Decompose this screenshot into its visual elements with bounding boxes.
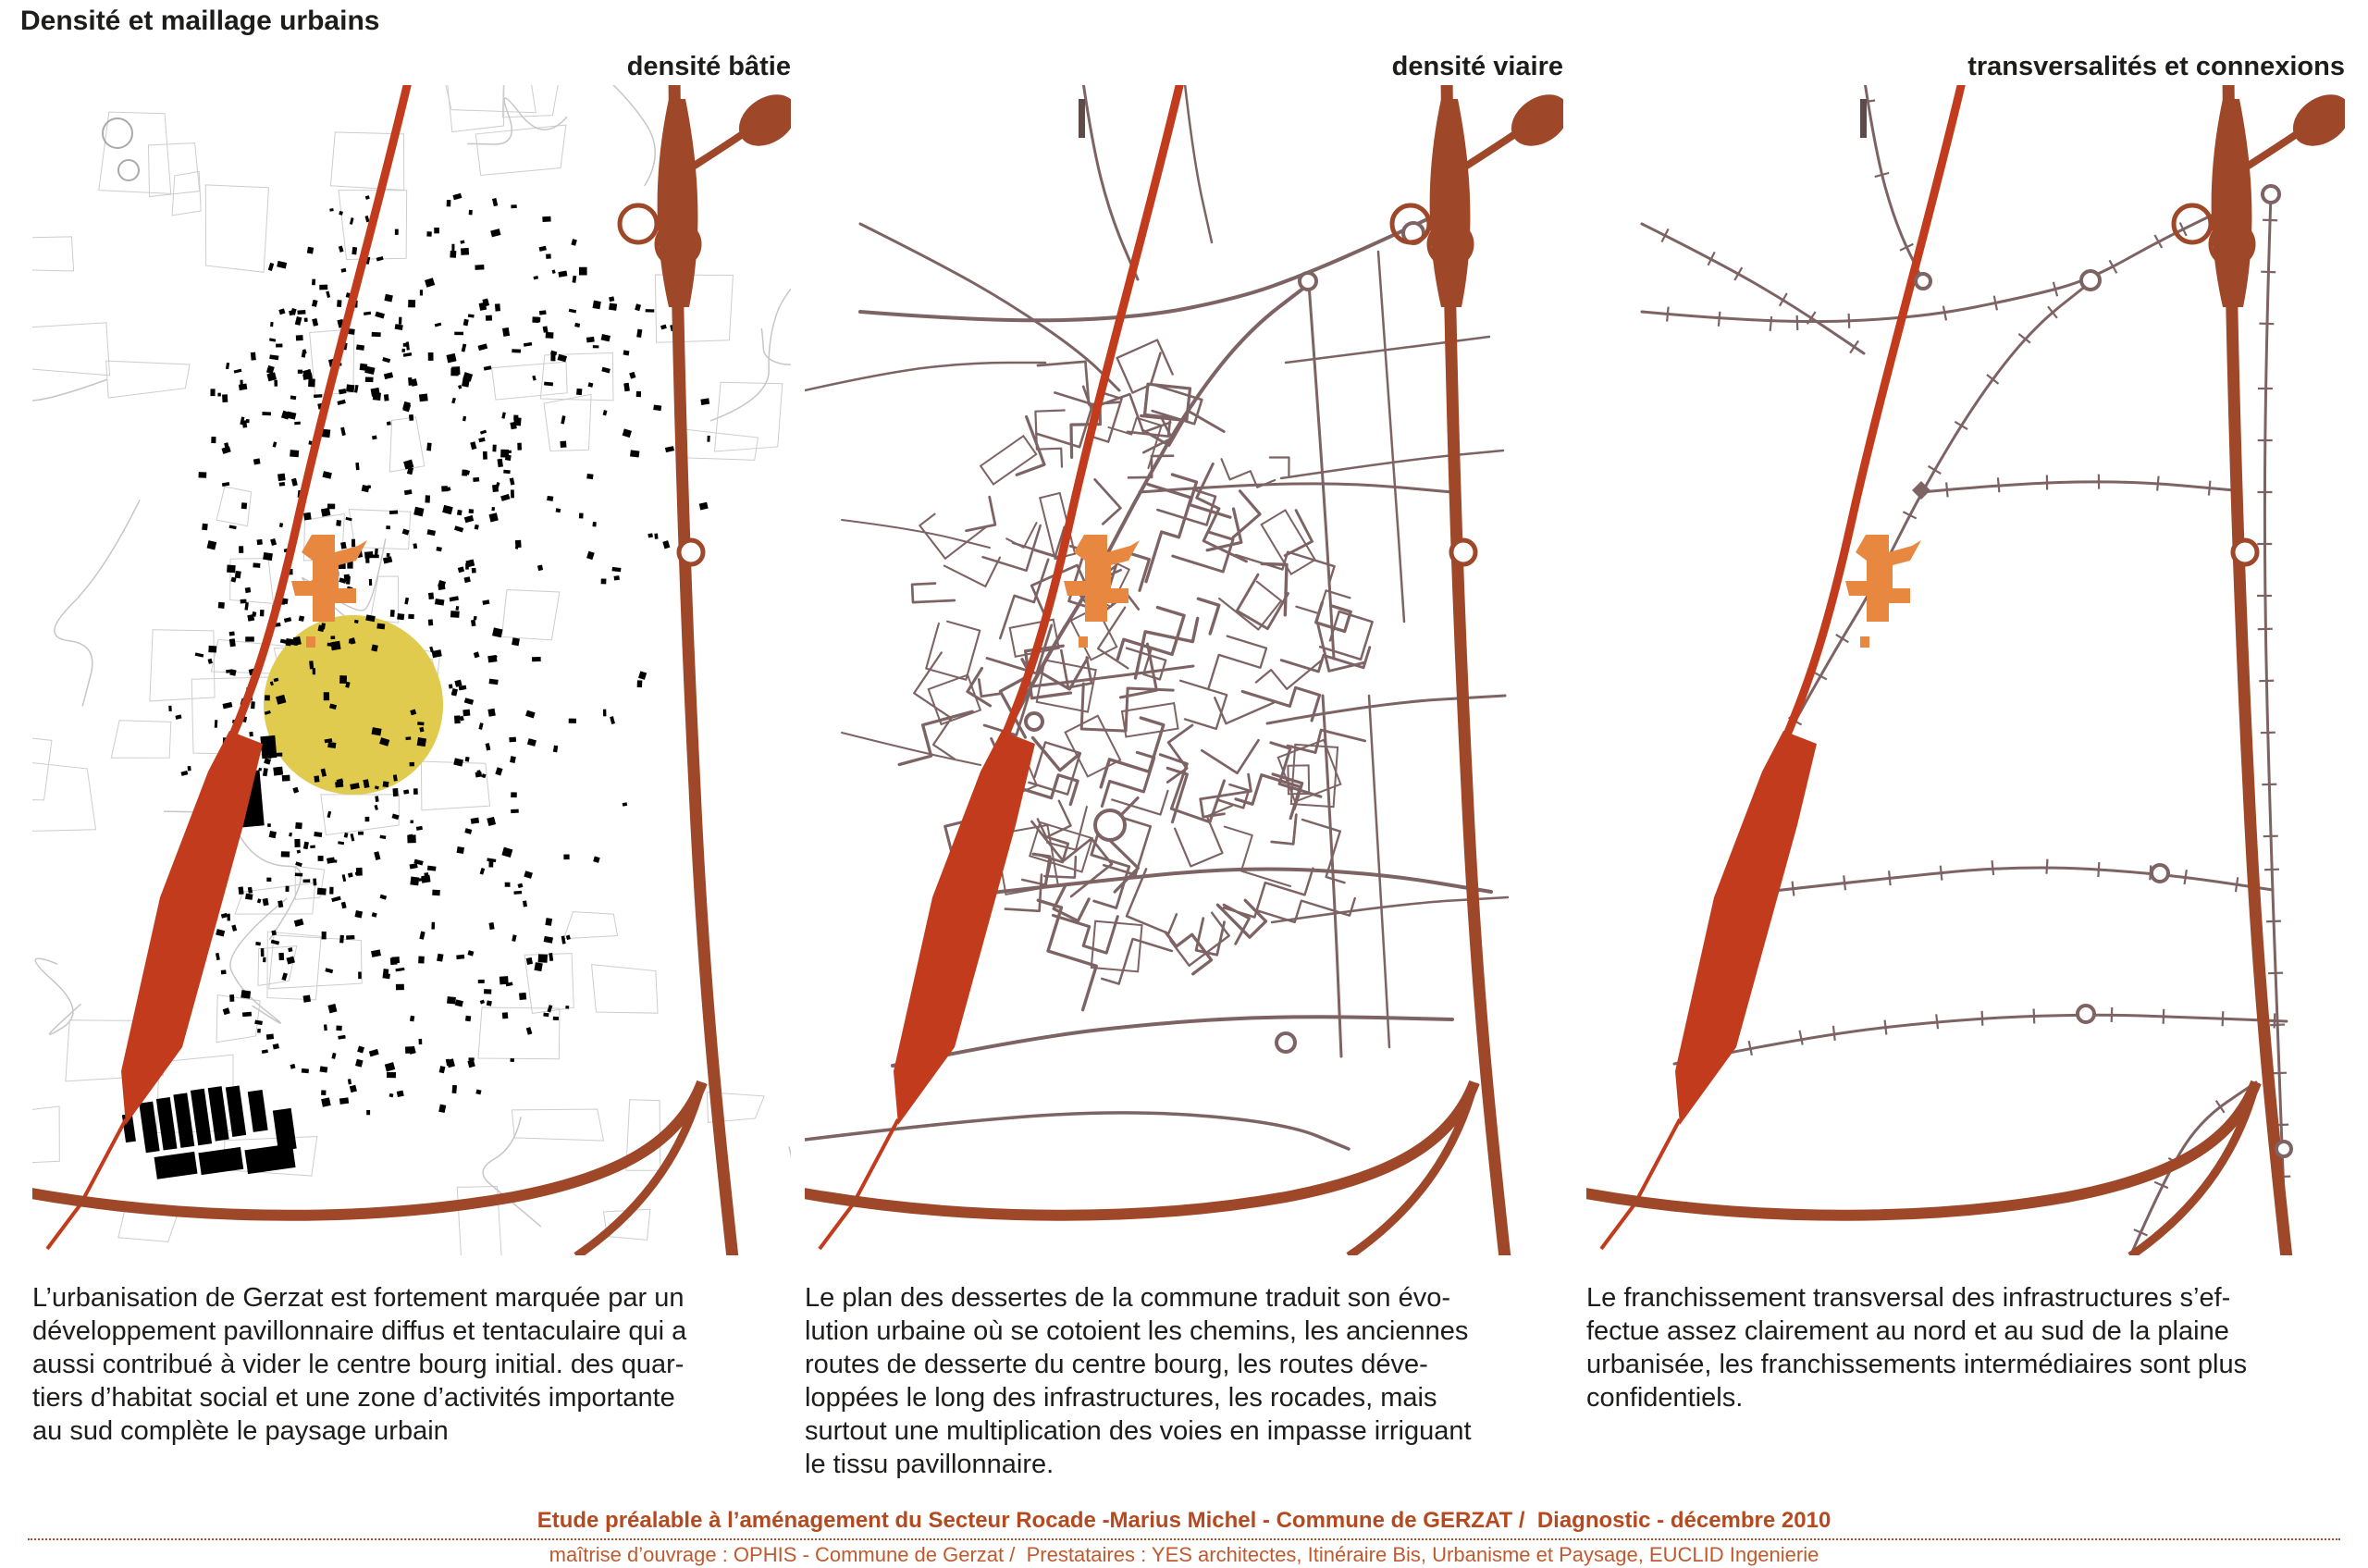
caption-transversalites: Le franchissement transversal des infras… [1586, 1281, 2345, 1414]
caption-densite-viaire: Le plan des dessertes de la commune trad… [805, 1281, 1563, 1481]
panel-densite-batie: densité bâtie L’urbanisation de Gerzat e… [32, 51, 791, 1448]
panel-transversalites: transversalités et connexions Le franchi… [1586, 51, 2345, 1414]
map-transversalites-figure [1586, 85, 2345, 1255]
footer-study-line: Etude préalable à l’aménagement du Secte… [0, 1508, 2368, 1534]
panel-densite-viaire: densité viaire Le plan des dessertes de … [805, 51, 1563, 1481]
footer-credits-line: maîtrise d’ouvrage : OPHIS - Commune de … [0, 1543, 2368, 1567]
map-title-densite-viaire: densité viaire [805, 51, 1563, 85]
caption-densite-batie: L’urbanisation de Gerzat est fortement m… [32, 1281, 791, 1448]
page-title: Densité et maillage urbains [20, 6, 379, 37]
map-densite-batie-figure [32, 85, 791, 1255]
map-densite-viaire-figure [805, 85, 1563, 1255]
map-title-transversalites: transversalités et connexions [1586, 51, 2345, 85]
footer: Etude préalable à l’aménagement du Secte… [0, 1508, 2368, 1567]
footer-dotted-rule [28, 1538, 2340, 1540]
map-title-densite-batie: densité bâtie [32, 51, 791, 85]
